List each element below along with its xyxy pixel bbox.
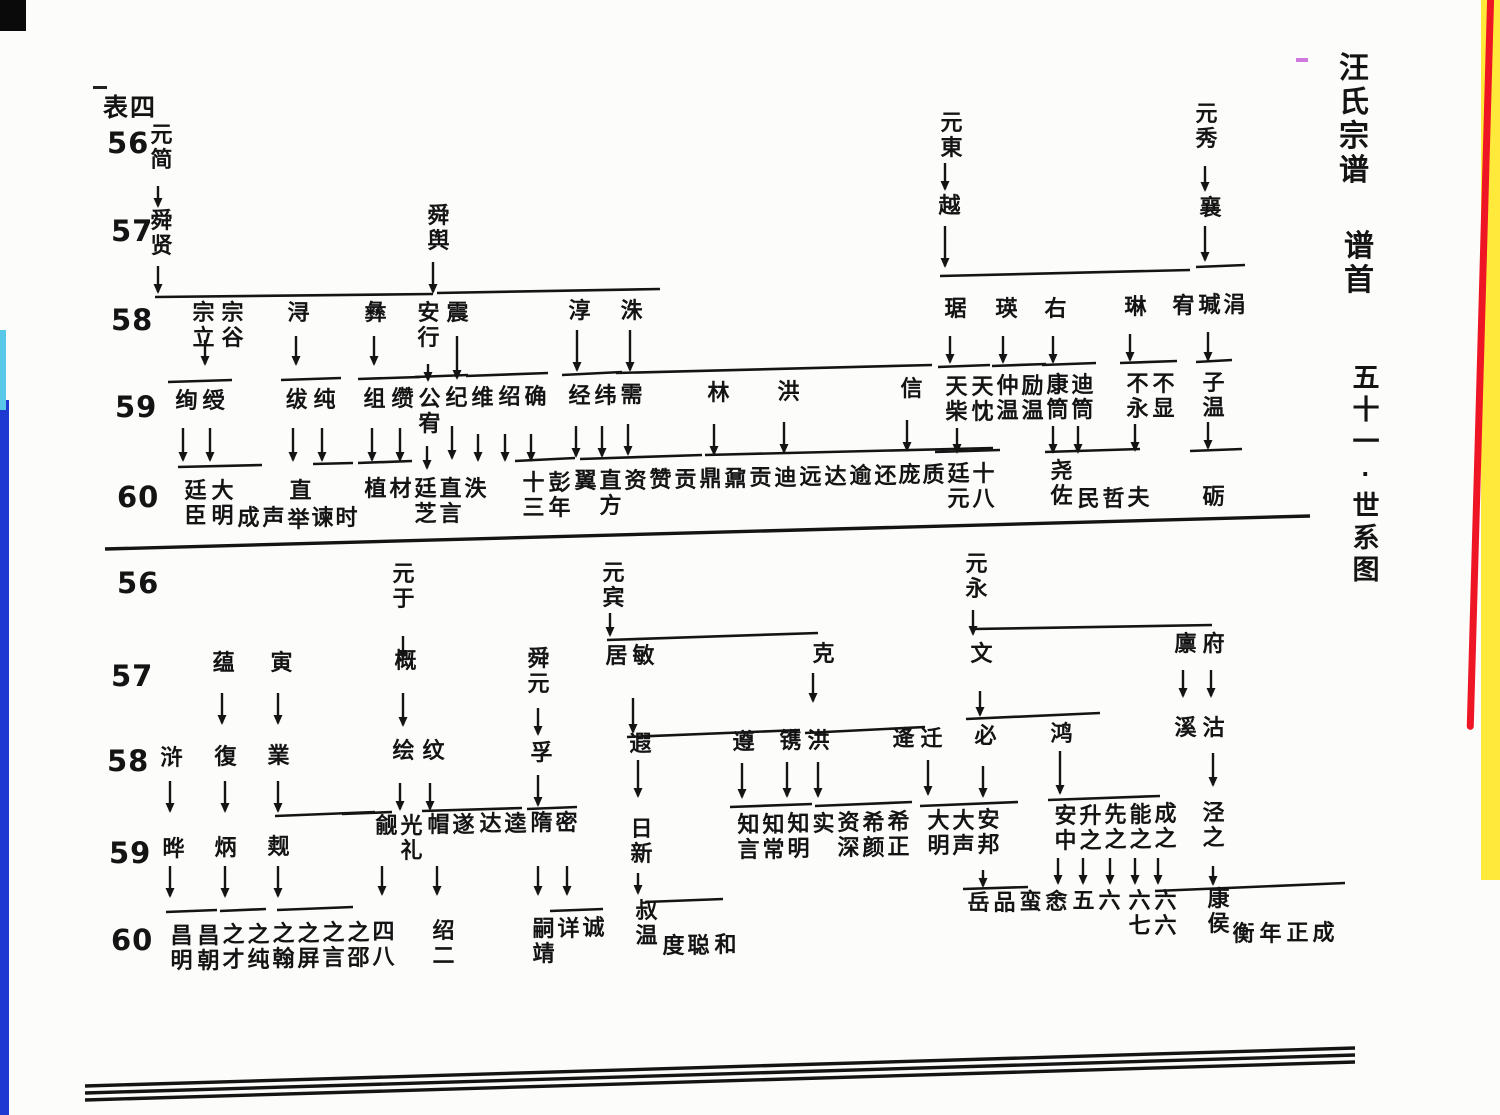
person-node: 大 明 xyxy=(209,478,236,528)
person-node: 淳 xyxy=(566,298,593,323)
person-node: 之 翰 xyxy=(270,921,297,971)
person-node: 迪 筒 xyxy=(1069,372,1096,422)
person-node: 谏 xyxy=(309,505,336,530)
person-node: 经 xyxy=(566,383,593,408)
person-node: 襄 xyxy=(1197,195,1224,220)
generation-label: 57 xyxy=(111,214,153,248)
side-title: 谱 首 xyxy=(1341,230,1377,298)
side-title: 汪 氏 宗 谱 xyxy=(1336,52,1372,188)
person-node: 正 xyxy=(1284,920,1311,945)
person-node: 度 xyxy=(660,933,687,958)
person-node: 希 正 xyxy=(885,809,912,859)
person-node: 廷 臣 xyxy=(182,478,209,528)
person-node: 舜 贤 xyxy=(148,208,175,258)
person-node: 纹 xyxy=(420,738,447,763)
person-node: 彭 年 xyxy=(546,470,573,520)
person-node: 康 筒 xyxy=(1044,372,1071,422)
person-node: 之 邵 xyxy=(345,920,372,970)
person-node: 浔 xyxy=(285,300,312,325)
person-node: 大 声 xyxy=(950,808,977,858)
person-node: 六 六 xyxy=(1152,888,1179,938)
scan-tick-artifact xyxy=(1296,58,1308,62)
genealogy-chart-page: 表四 56575859605657585960元 简舜 贤舜 舆元 東越元 秀襄… xyxy=(0,0,1500,1115)
person-node: 逾 xyxy=(847,463,874,488)
person-node: 声 xyxy=(260,505,287,530)
person-node: 浒 xyxy=(158,745,185,770)
person-node: 遂 xyxy=(450,812,477,837)
person-node: 鼎 xyxy=(697,466,724,491)
person-node: 天 柴 xyxy=(943,374,970,424)
person-node: 涓 xyxy=(1221,292,1248,317)
person-node: 实 xyxy=(810,811,837,836)
person-node: 聪 xyxy=(685,933,712,958)
person-node: 帽 xyxy=(425,812,452,837)
person-node: 五 xyxy=(1070,888,1097,913)
person-node: 资 xyxy=(622,468,649,493)
person-node: 洙 xyxy=(618,298,645,323)
person-node: 晔 xyxy=(160,836,187,861)
person-node: 復 xyxy=(212,744,239,769)
person-node: 嗣 靖 xyxy=(530,916,557,966)
person-node: 子 温 xyxy=(1200,370,1227,420)
person-node: 元 秀 xyxy=(1193,101,1220,151)
person-node: 十 三 xyxy=(520,470,547,520)
person-node: 年 xyxy=(1257,921,1284,946)
person-node: 缵 xyxy=(389,386,416,411)
person-node: 还 xyxy=(872,463,899,488)
person-node: 材 xyxy=(387,476,414,501)
person-node: 先 之 xyxy=(1102,802,1129,852)
person-node: 纪 xyxy=(443,385,470,410)
person-node: 逄 xyxy=(890,726,917,751)
generation-label: 58 xyxy=(107,744,149,778)
person-node: 详 xyxy=(555,916,582,941)
person-node: 四 八 xyxy=(370,919,397,969)
person-node: 绍 二 xyxy=(430,918,457,968)
person-node: 成 xyxy=(1310,920,1337,945)
person-node: 觎 xyxy=(373,813,400,838)
person-node: 夫 xyxy=(1125,485,1152,510)
person-node: 觌 xyxy=(265,834,292,859)
person-node: 安 中 xyxy=(1052,803,1079,853)
person-node: 庞 xyxy=(896,462,923,487)
person-node: 之 屏 xyxy=(295,921,322,971)
person-node: 叔 温 xyxy=(633,898,660,948)
person-node: 天 忱 xyxy=(969,374,996,424)
generation-label: 56 xyxy=(117,566,159,600)
person-node: 光 礼 xyxy=(398,813,425,863)
person-node: 居 xyxy=(603,643,630,668)
person-node: 信 xyxy=(898,376,925,401)
person-node: 宥 xyxy=(1170,293,1197,318)
person-node: 绂 xyxy=(283,387,310,412)
generation-label: 60 xyxy=(117,480,159,514)
person-node: 尧 佐 xyxy=(1048,458,1075,508)
person-node: 诚 xyxy=(580,915,607,940)
person-node: 绶 xyxy=(200,388,227,413)
person-node: 悆 xyxy=(1043,889,1070,914)
person-node: 隋 xyxy=(528,810,555,835)
person-node: 林 xyxy=(705,380,732,405)
person-node: 孚 xyxy=(528,740,555,765)
person-node: 需 xyxy=(618,382,645,407)
person-node: 元 永 xyxy=(963,551,990,601)
person-node: 举 xyxy=(285,507,312,532)
person-node: 之 才 xyxy=(220,922,247,972)
person-node: 十 八 xyxy=(970,461,997,511)
generation-label: 59 xyxy=(109,836,151,870)
person-node: 鼐 xyxy=(722,466,749,491)
scan-edge-strip-left xyxy=(0,400,9,1115)
scan-corner-artifact xyxy=(0,0,26,31)
person-node: 公 宥 xyxy=(416,386,443,436)
person-node: 琳 xyxy=(1122,294,1149,319)
person-node: 纬 xyxy=(592,383,619,408)
person-node: 升 之 xyxy=(1077,803,1104,853)
person-node: 贡 xyxy=(672,467,699,492)
person-node: 绘 xyxy=(390,738,417,763)
generation-label: 57 xyxy=(111,659,153,693)
person-node: 蕴 xyxy=(210,650,237,675)
person-node: 概 xyxy=(392,648,419,673)
person-node: 组 xyxy=(361,386,388,411)
person-node: 能 之 xyxy=(1127,802,1154,852)
person-node: 不 显 xyxy=(1150,371,1177,421)
person-node: 宗 谷 xyxy=(219,300,246,350)
person-node: 质 xyxy=(920,462,947,487)
person-node: 寅 xyxy=(268,650,295,675)
person-node: 炳 xyxy=(212,835,239,860)
person-node: 康 侯 xyxy=(1205,886,1232,936)
scan-edge-glow-left xyxy=(0,330,6,410)
person-node: 震 xyxy=(444,300,471,325)
person-node: 时 xyxy=(333,505,360,530)
person-node: 泾 之 xyxy=(1200,800,1227,850)
person-node: 日 新 xyxy=(628,816,655,866)
person-node: 六 七 xyxy=(1126,888,1153,938)
person-node: 远 xyxy=(797,464,824,489)
person-node: 维 xyxy=(469,385,496,410)
person-node: 鸿 xyxy=(1048,721,1075,746)
person-node: 民 xyxy=(1075,486,1102,511)
person-node: 纯 xyxy=(311,387,338,412)
person-node: 宗 立 xyxy=(190,300,217,350)
person-node: 元 于 xyxy=(390,561,417,611)
person-node: 廪 xyxy=(1172,631,1199,656)
person-node: 品 xyxy=(991,890,1018,915)
person-node: 迪 xyxy=(772,465,799,490)
person-node: 六 xyxy=(1096,888,1123,913)
person-node: 琚 xyxy=(942,296,969,321)
person-node: 泆 xyxy=(462,476,489,501)
person-node: 直 xyxy=(287,478,314,503)
generation-label: 56 xyxy=(107,126,149,160)
person-node: 镌 xyxy=(777,728,804,753)
person-node: 哲 xyxy=(1100,486,1127,511)
person-node: 廷 芝 xyxy=(412,476,439,526)
person-node: 大 明 xyxy=(925,808,952,858)
person-node: 越 xyxy=(936,193,963,218)
person-node: 元 宾 xyxy=(600,560,627,610)
person-node: 岳 xyxy=(965,890,992,915)
person-node: 瑛 xyxy=(993,296,1020,321)
person-node: 遵 xyxy=(730,729,757,754)
person-node: 右 xyxy=(1042,296,1069,321)
person-node: 舜 元 xyxy=(525,646,552,696)
person-node: 达 xyxy=(822,464,849,489)
person-node: 必 xyxy=(972,723,999,748)
person-node: 达 xyxy=(477,811,504,836)
person-node: 希 颜 xyxy=(860,810,887,860)
person-node: 确 xyxy=(522,384,549,409)
person-node: 舜 舆 xyxy=(425,203,452,253)
person-node: 府 xyxy=(1200,631,1227,656)
person-node: 迁 xyxy=(918,726,945,751)
person-node: 成 之 xyxy=(1152,801,1179,851)
person-node: 昌 朝 xyxy=(195,923,222,973)
person-node: 溪 xyxy=(1172,715,1199,740)
person-node: 知 明 xyxy=(785,811,812,861)
generation-label: 58 xyxy=(111,303,153,337)
person-node: 励 温 xyxy=(1019,373,1046,423)
person-node: 砺 xyxy=(1200,484,1227,509)
person-node: 知 言 xyxy=(735,812,762,862)
person-node: 之 言 xyxy=(320,920,347,970)
person-node: 之 纯 xyxy=(245,922,272,972)
person-node: 衡 xyxy=(1230,921,1257,946)
person-node: 直 言 xyxy=(437,476,464,526)
person-node: 仲 温 xyxy=(994,373,1021,423)
table-number-label: 表四 xyxy=(103,88,157,124)
person-node: 洪 xyxy=(805,728,832,753)
person-node: 不 永 xyxy=(1124,371,1151,421)
person-node: 業 xyxy=(265,743,292,768)
person-node: 直 方 xyxy=(597,468,624,518)
person-node: 元 简 xyxy=(148,122,175,172)
person-node: 密 xyxy=(553,810,580,835)
person-node: 沽 xyxy=(1200,715,1227,740)
person-node: 翼 xyxy=(572,468,599,493)
person-node: 蛮 xyxy=(1017,889,1044,914)
person-node: 绍 xyxy=(496,384,523,409)
person-node: 资 深 xyxy=(835,810,862,860)
person-node: 植 xyxy=(362,476,389,501)
person-node: 赞 xyxy=(647,467,674,492)
person-node: 昌 明 xyxy=(168,923,195,973)
person-node: 知 常 xyxy=(760,812,787,862)
person-node: 文 xyxy=(968,641,995,666)
person-node: 瑊 xyxy=(1196,292,1223,317)
generation-label: 60 xyxy=(111,923,153,957)
person-node: 克 xyxy=(810,641,837,666)
person-node: 元 東 xyxy=(938,110,965,160)
person-node: 绚 xyxy=(173,388,200,413)
side-title: 五 十 一 · 世 系 图 xyxy=(1348,362,1384,586)
person-node: 安 邦 xyxy=(975,807,1002,857)
person-node: 遐 xyxy=(627,731,654,756)
person-node: 敏 xyxy=(630,643,657,668)
person-node: 安 行 xyxy=(415,300,442,350)
person-node: 逵 xyxy=(502,811,529,836)
person-node: 廷 元 xyxy=(945,461,972,511)
person-node: 成 xyxy=(235,505,262,530)
person-node: 彝 xyxy=(362,300,389,325)
person-node: 洪 xyxy=(775,379,802,404)
person-node: 贡 xyxy=(747,465,774,490)
generation-label: 59 xyxy=(115,390,157,424)
person-node: 和 xyxy=(712,932,739,957)
